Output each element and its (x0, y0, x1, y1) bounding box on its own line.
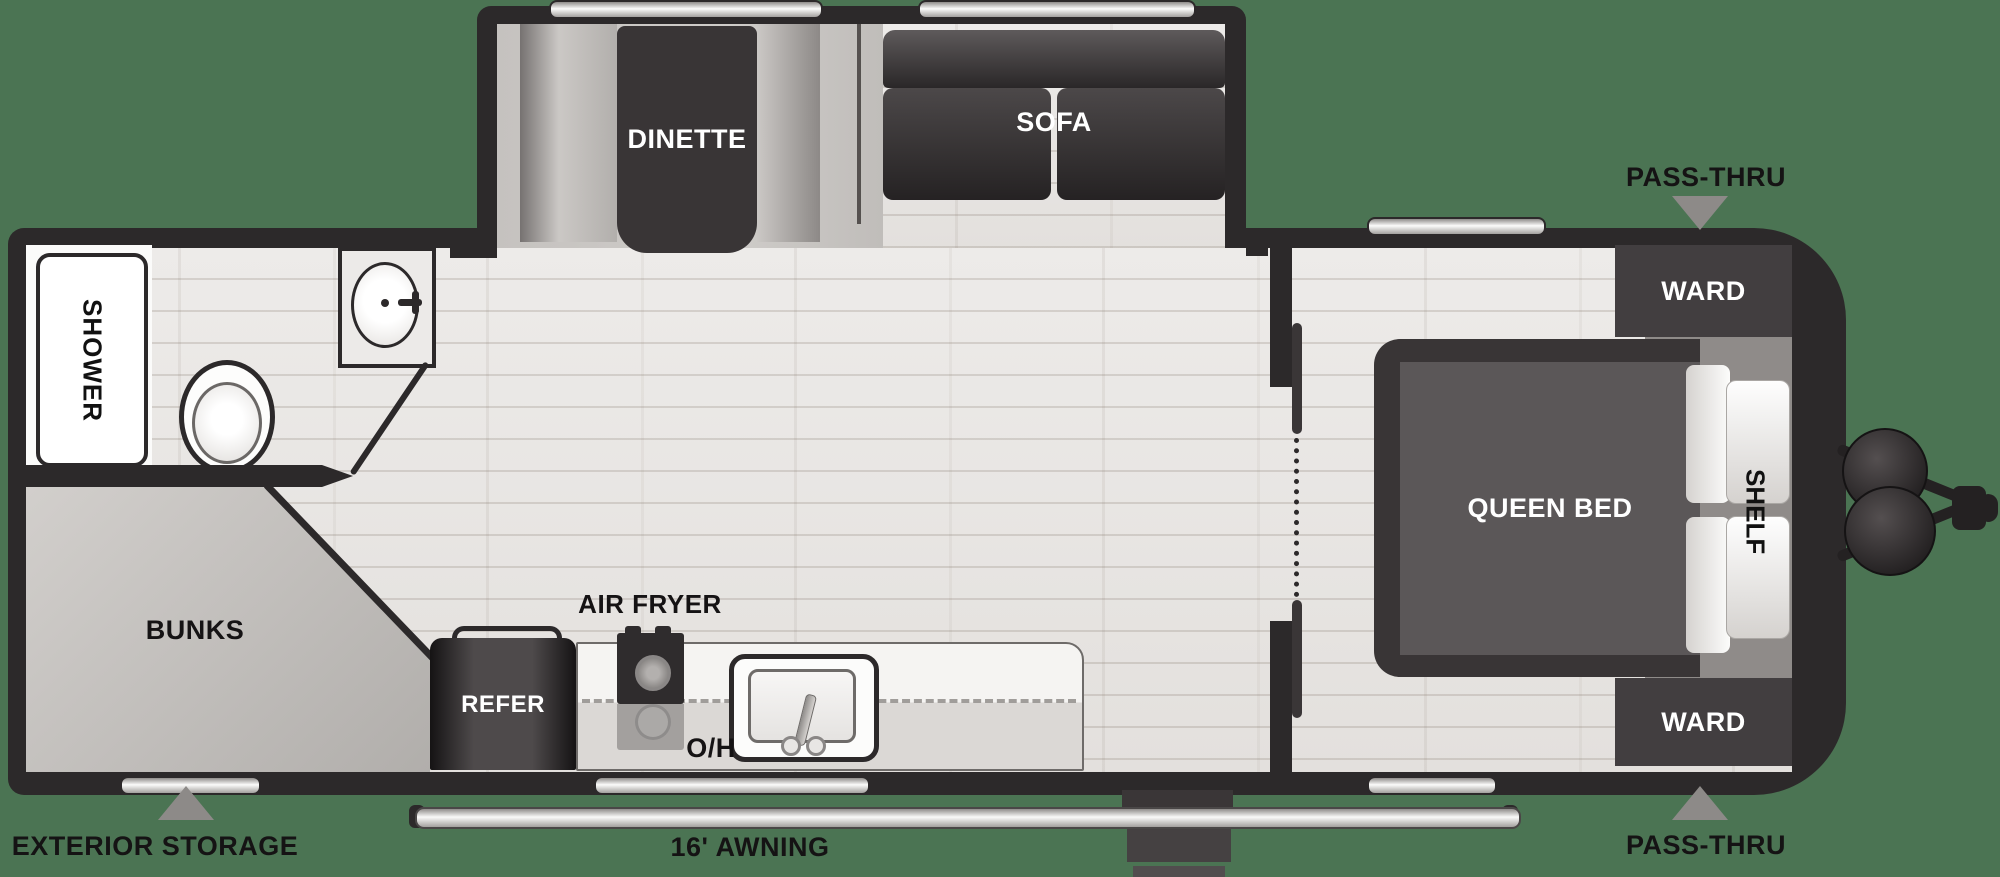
range-burner-icon (635, 704, 671, 740)
wardrobe-top: WARD (1615, 245, 1792, 337)
window-icon-kitchen (594, 776, 870, 795)
queen-bed-label: QUEEN BED (1467, 493, 1632, 524)
bathroom-faucet-handle (412, 291, 419, 314)
overhead-label: O/H (680, 733, 742, 763)
pass-thru-bottom-label: PASS-THRU (1596, 829, 1816, 861)
window-icon-bedroom-bottom (1367, 776, 1497, 795)
hitch-coupler-icon (1952, 486, 1986, 530)
ward-top-label: WARD (1661, 276, 1746, 307)
toilet-bowl (192, 382, 262, 464)
exterior-storage-arrow-icon (158, 786, 214, 820)
bunks-label: BUNKS (95, 614, 295, 646)
bedroom-partition-wall-bottom (1270, 621, 1292, 772)
pass-thru-arrow-icon (1672, 786, 1728, 820)
dinette-bench-left (520, 24, 617, 242)
queen-bed: QUEEN BED (1400, 362, 1700, 655)
sofa-seat-left (883, 88, 1051, 200)
pillow (1686, 365, 1730, 503)
shower-pan: SHOWER (36, 253, 148, 467)
sofa-seat-right (1057, 88, 1225, 200)
window-icon-sofa (918, 0, 1196, 19)
dinette-label: DINETTE (627, 124, 746, 155)
window-icon-dinette (549, 0, 823, 19)
hitch-coupler-tip (1984, 494, 1998, 522)
awning-tube (415, 807, 1521, 829)
dinette-bench-right (757, 24, 820, 242)
bedroom-partition-wall-top (1270, 248, 1292, 387)
bathroom-wall-end (322, 465, 353, 487)
refer-label: REFER (433, 691, 573, 719)
wardrobe-bottom: WARD (1615, 678, 1792, 766)
kitchen-faucet-knob (806, 736, 826, 756)
floorplan-canvas: DINETTE SOFA SHOWER BUNKS REFER O/H AIR … (0, 0, 2000, 877)
exterior-storage-label: EXTERIOR STORAGE (15, 830, 295, 862)
pass-thru-arrow-icon (1672, 196, 1728, 230)
awning-label: 16' AWNING (620, 831, 880, 863)
ward-bottom-label: WARD (1661, 707, 1746, 738)
slideout-wall-notch-left (450, 228, 497, 258)
bathroom-wall (8, 465, 322, 487)
slideout-seam (857, 24, 861, 224)
pocket-door-bottom (1292, 600, 1302, 718)
propane-tank-icon (1844, 486, 1936, 576)
sofa-back (883, 30, 1225, 88)
entry-step (1127, 826, 1231, 862)
privacy-curtain-dotted-line (1294, 438, 1299, 597)
shelf-label: SHELF (1738, 452, 1772, 572)
window-icon-bedroom-top (1367, 217, 1546, 236)
shower-label: SHOWER (77, 299, 108, 422)
slideout-wall-notch-right (1246, 228, 1268, 256)
pillow (1686, 517, 1730, 653)
pass-thru-top-label: PASS-THRU (1596, 161, 1816, 193)
pocket-door-top (1292, 323, 1302, 434)
sofa-label: SOFA (974, 106, 1134, 138)
entry-step (1133, 866, 1225, 877)
kitchen-faucet-knob (781, 736, 801, 756)
dinette-table: DINETTE (617, 26, 757, 253)
bathroom-sink-drain (381, 299, 389, 307)
air-fryer-label: AIR FRYER (565, 590, 735, 618)
range-burner-icon (635, 655, 671, 691)
